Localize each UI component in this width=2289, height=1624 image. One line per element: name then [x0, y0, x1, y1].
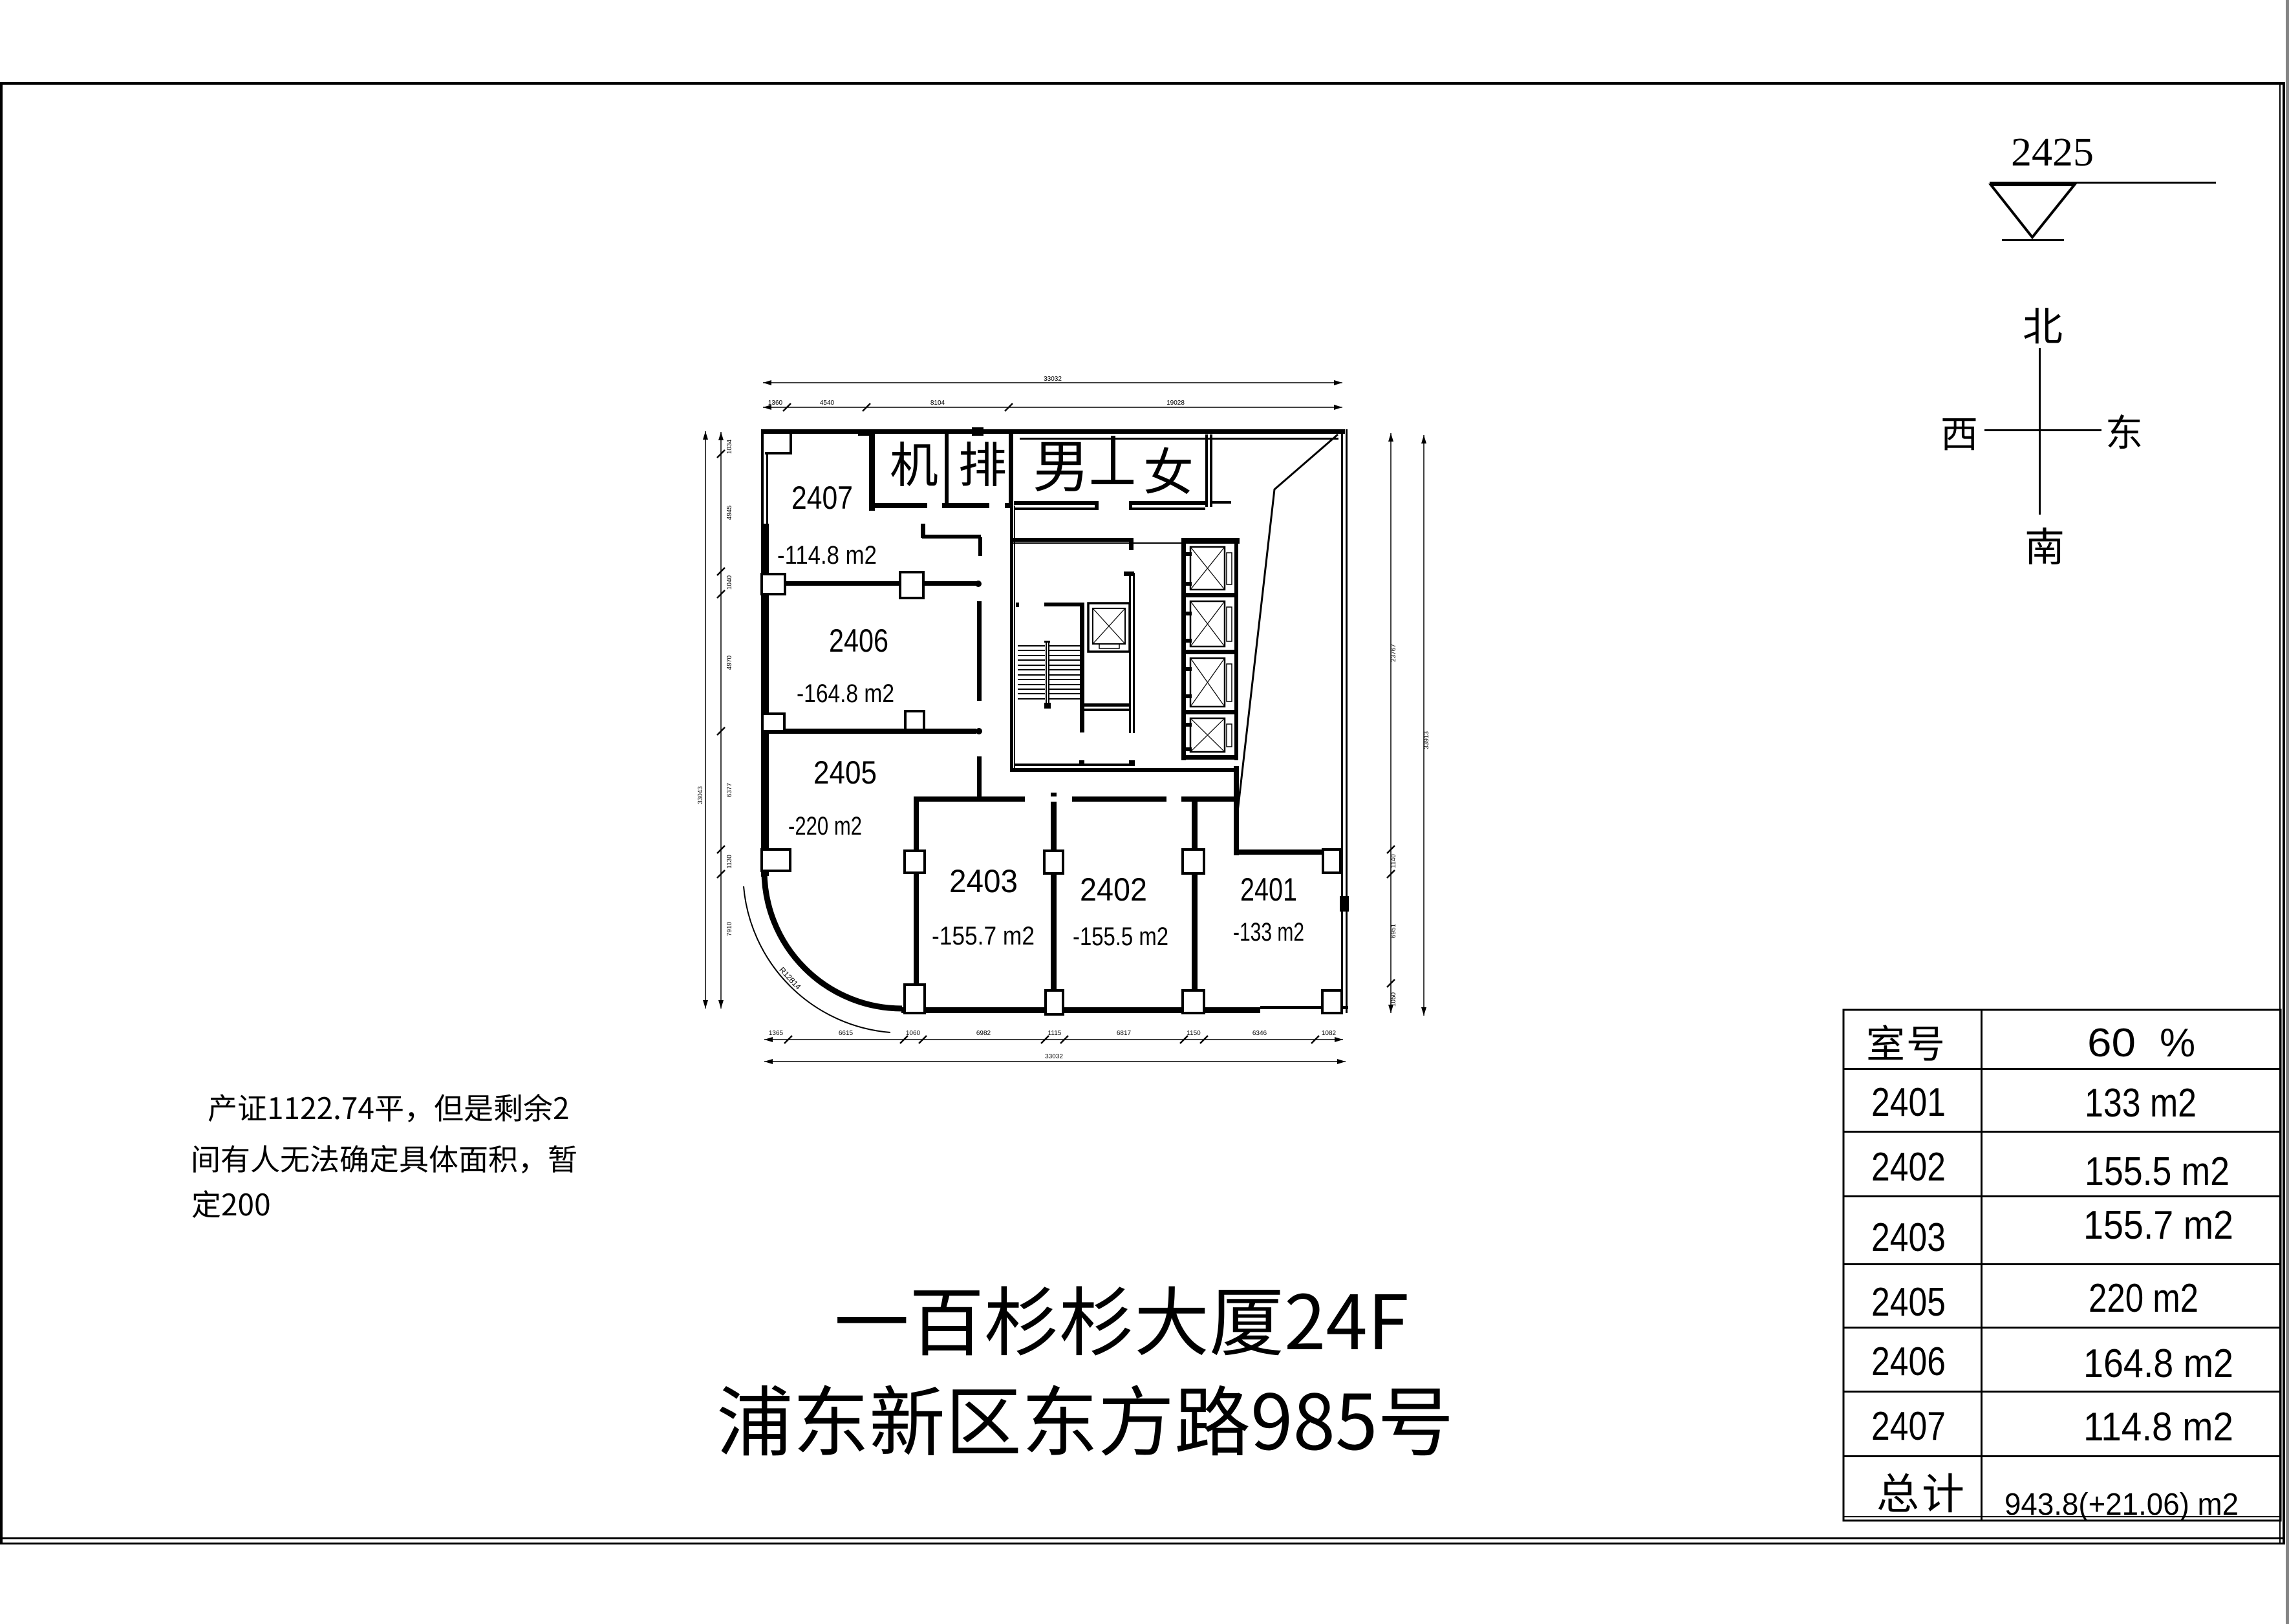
svg-text:33913: 33913: [1423, 731, 1430, 749]
svg-text:1115: 1115: [1048, 1030, 1062, 1037]
svg-text:2401: 2401: [1240, 871, 1297, 908]
svg-text:-155.5 m2: -155.5 m2: [1073, 923, 1168, 951]
svg-text:1150: 1150: [1187, 1030, 1201, 1037]
svg-text:6951: 6951: [1390, 923, 1397, 938]
svg-text:6615: 6615: [839, 1030, 854, 1037]
svg-text:155.5 m2: 155.5 m2: [2085, 1149, 2230, 1194]
svg-text:164.8 m2: 164.8 m2: [2083, 1341, 2233, 1386]
svg-text:23767: 23767: [1390, 644, 1397, 662]
svg-text:2402: 2402: [1080, 871, 1147, 908]
svg-text:%: %: [2160, 1021, 2195, 1065]
svg-text:-220 m2: -220 m2: [788, 812, 862, 840]
svg-text:2403: 2403: [949, 863, 1018, 899]
svg-text:1060: 1060: [906, 1030, 921, 1037]
svg-text:33032: 33032: [1044, 376, 1062, 383]
svg-text:2406: 2406: [1871, 1340, 1946, 1384]
svg-text:4540: 4540: [820, 400, 835, 407]
svg-text:6817: 6817: [1117, 1030, 1132, 1037]
svg-text:33032: 33032: [1045, 1053, 1063, 1060]
svg-text:6346: 6346: [1252, 1030, 1267, 1037]
svg-text:33043: 33043: [697, 786, 704, 804]
svg-text:2425: 2425: [2011, 131, 2094, 175]
svg-text:1365: 1365: [769, 1030, 784, 1037]
svg-text:8104: 8104: [930, 400, 945, 407]
svg-text:220 m2: 220 m2: [2089, 1276, 2198, 1321]
svg-text:2406: 2406: [829, 623, 888, 659]
svg-text:-164.8 m2: -164.8 m2: [797, 679, 894, 708]
svg-text:1140: 1140: [1390, 854, 1397, 868]
svg-text:2405: 2405: [813, 754, 877, 791]
svg-text:60: 60: [2087, 1021, 2136, 1065]
svg-text:133 m2: 133 m2: [2085, 1081, 2197, 1126]
svg-text:114.8 m2: 114.8 m2: [2083, 1405, 2233, 1449]
svg-text:2407: 2407: [1871, 1404, 1946, 1449]
svg-text:1034: 1034: [726, 439, 733, 454]
svg-text:-133 m2: -133 m2: [1233, 918, 1304, 946]
svg-text:-114.8 m2: -114.8 m2: [777, 541, 877, 570]
svg-text:2405: 2405: [1871, 1280, 1946, 1325]
svg-text:2402: 2402: [1871, 1145, 1946, 1190]
svg-text:7910: 7910: [726, 921, 733, 936]
svg-text:943.8(+21.06) m2: 943.8(+21.06) m2: [2004, 1488, 2239, 1522]
svg-text:1050: 1050: [1390, 992, 1397, 1007]
svg-text:4970: 4970: [726, 655, 733, 670]
svg-text:6982: 6982: [976, 1030, 991, 1037]
svg-text:155.7 m2: 155.7 m2: [2083, 1203, 2233, 1248]
svg-text:2403: 2403: [1871, 1215, 1946, 1260]
svg-text:1130: 1130: [726, 855, 733, 869]
svg-text:-155.7 m2: -155.7 m2: [932, 922, 1035, 950]
svg-text:1040: 1040: [726, 575, 733, 590]
svg-text:1360: 1360: [768, 400, 783, 407]
svg-text:19028: 19028: [1166, 400, 1185, 407]
svg-text:6377: 6377: [726, 782, 733, 797]
svg-text:2401: 2401: [1871, 1080, 1946, 1125]
svg-text:4945: 4945: [726, 505, 733, 520]
svg-text:1082: 1082: [1322, 1030, 1337, 1037]
svg-text:2407: 2407: [791, 480, 853, 516]
